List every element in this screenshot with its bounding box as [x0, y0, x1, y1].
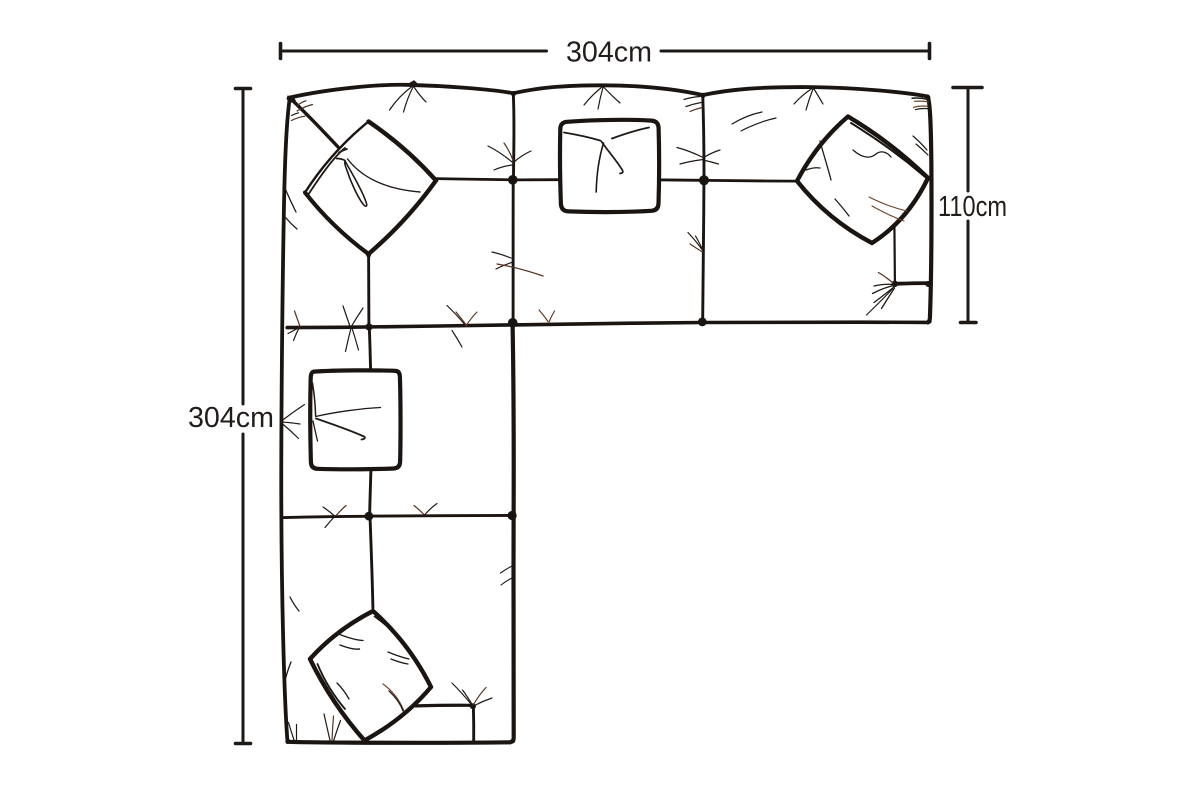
svg-text:304cm: 304cm	[566, 37, 652, 69]
svg-text:304cm: 304cm	[188, 402, 274, 434]
svg-text:110cm: 110cm	[938, 191, 1007, 223]
